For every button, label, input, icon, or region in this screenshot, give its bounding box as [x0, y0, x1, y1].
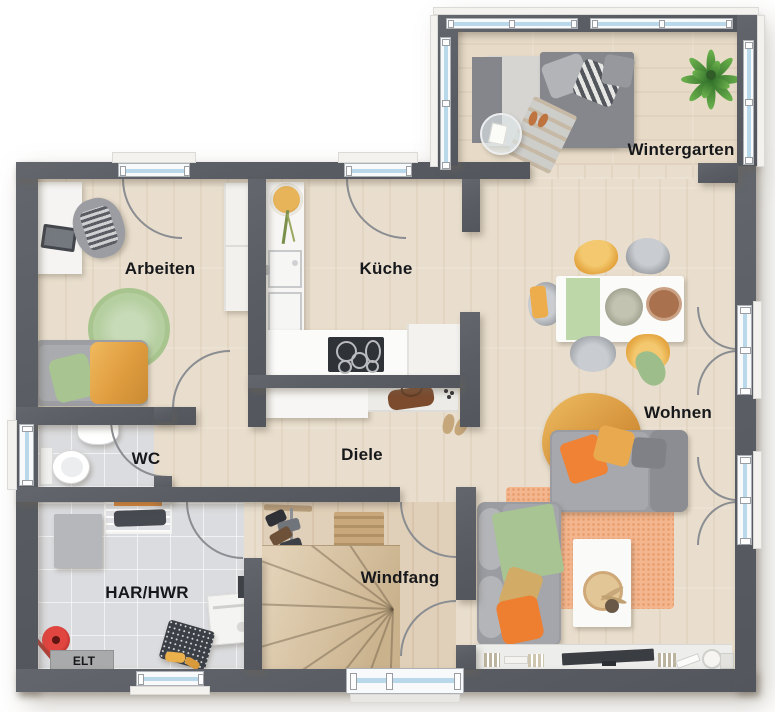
wall-arbeiten-kueche — [248, 179, 266, 427]
room-label-windfang: Windfang — [361, 568, 440, 588]
floor-plan-canvas: Wintergarten Arbeiten Küche Wohnen WC Di… — [0, 0, 775, 712]
laptop-screen — [44, 227, 74, 249]
toilet-bowl — [52, 450, 90, 484]
room-label-arbeiten: Arbeiten — [125, 259, 196, 279]
book-angled — [675, 653, 700, 669]
washer-panel — [213, 604, 245, 610]
wall-stub-wintergarten — [698, 163, 738, 183]
window-kueche — [344, 163, 412, 177]
sill-terrace2 — [753, 451, 762, 549]
office-chair-cushion — [79, 204, 120, 251]
sink-drain — [292, 260, 298, 266]
tv-foot — [602, 661, 616, 666]
window-terrace2 — [737, 455, 752, 545]
front-door — [346, 668, 464, 694]
window-hwr — [136, 671, 204, 686]
glazing-wintergarten-top-right — [590, 18, 733, 29]
books-3 — [528, 654, 544, 667]
wall-kueche-right — [460, 312, 480, 427]
window-arbeiten — [118, 163, 190, 177]
sofa-top-headrest — [631, 437, 667, 469]
sofa-left — [477, 502, 561, 646]
coffee-table — [573, 539, 631, 627]
glazing-wintergarten-left — [440, 37, 451, 170]
front-door-step — [350, 694, 460, 703]
wall-wc-right-upper — [154, 407, 172, 422]
kitchen-cabinet — [268, 292, 302, 332]
glazing-wintergarten-right — [743, 40, 754, 165]
candle — [702, 649, 722, 669]
wall-mid-horizontal — [16, 487, 400, 502]
palm-plant — [680, 48, 742, 110]
window-terrace1 — [737, 305, 752, 395]
label-elt: ELT — [73, 654, 95, 668]
room-label-wohnen: Wohnen — [644, 403, 712, 423]
sideboard — [262, 388, 368, 418]
sill-hwr-window — [130, 686, 210, 695]
sofa-pillow-orange — [495, 594, 545, 646]
wall-windfang-right-upper — [456, 487, 476, 600]
deco-box — [720, 653, 734, 669]
burner-2 — [338, 360, 352, 374]
dining-table — [556, 276, 684, 342]
sill-wintergarten-right — [757, 15, 765, 167]
wardrobe — [224, 183, 250, 311]
tv-lowboard — [476, 644, 732, 670]
cooktop — [328, 337, 384, 372]
dining-chair-gray-bottom — [570, 336, 616, 372]
plant-vase — [605, 599, 619, 613]
keys — [444, 389, 448, 393]
table-copper-bowl — [646, 287, 682, 321]
table-centerpiece — [605, 288, 643, 326]
daybed-blanket — [90, 342, 148, 404]
sill-wintergarten-top — [433, 7, 759, 15]
glazing-wintergarten-top-left — [446, 18, 578, 29]
lounge-pillow-gray-2 — [601, 54, 636, 89]
books-1 — [484, 653, 500, 667]
sill-terrace1 — [753, 301, 762, 399]
sill-arbeiten-window — [112, 152, 196, 163]
toilet-seat — [61, 457, 83, 477]
staircase — [262, 545, 400, 669]
room-label-har-hwr: HAR/HWR — [105, 583, 189, 603]
storage-box — [54, 514, 102, 568]
table-runner — [566, 278, 600, 340]
kitchen-sink — [268, 250, 302, 288]
clothes-pile — [114, 509, 167, 527]
room-label-diele: Diele — [341, 445, 383, 465]
wall-hwr-right — [244, 558, 262, 670]
burner-5 — [366, 360, 379, 373]
books-4 — [658, 653, 676, 667]
laundry-yellow-1 — [165, 651, 186, 663]
room-label-wintergarten: Wintergarten — [627, 140, 734, 160]
daybed — [34, 340, 148, 406]
sill-wc-window — [7, 420, 17, 490]
chair-towel-yellow — [529, 285, 548, 318]
vacuum-hub — [52, 636, 60, 644]
window-wc — [19, 424, 34, 486]
laptop — [40, 224, 77, 252]
wall-exterior-right — [735, 163, 756, 692]
kitchen-appliance-column — [407, 324, 460, 376]
palm-center — [706, 70, 716, 80]
sofa-top — [550, 430, 688, 512]
wall-windfang-right-lower — [456, 645, 476, 670]
room-label-wc: WC — [132, 449, 161, 469]
wall-kueche-diele — [248, 375, 460, 388]
sill-kueche-window — [338, 152, 418, 163]
wall-stub-kueche-top — [462, 179, 480, 232]
sill-wintergarten-left — [430, 15, 438, 167]
room-label-kueche: Küche — [360, 259, 413, 279]
floor-passage — [530, 163, 698, 179]
books-2 — [504, 656, 528, 664]
